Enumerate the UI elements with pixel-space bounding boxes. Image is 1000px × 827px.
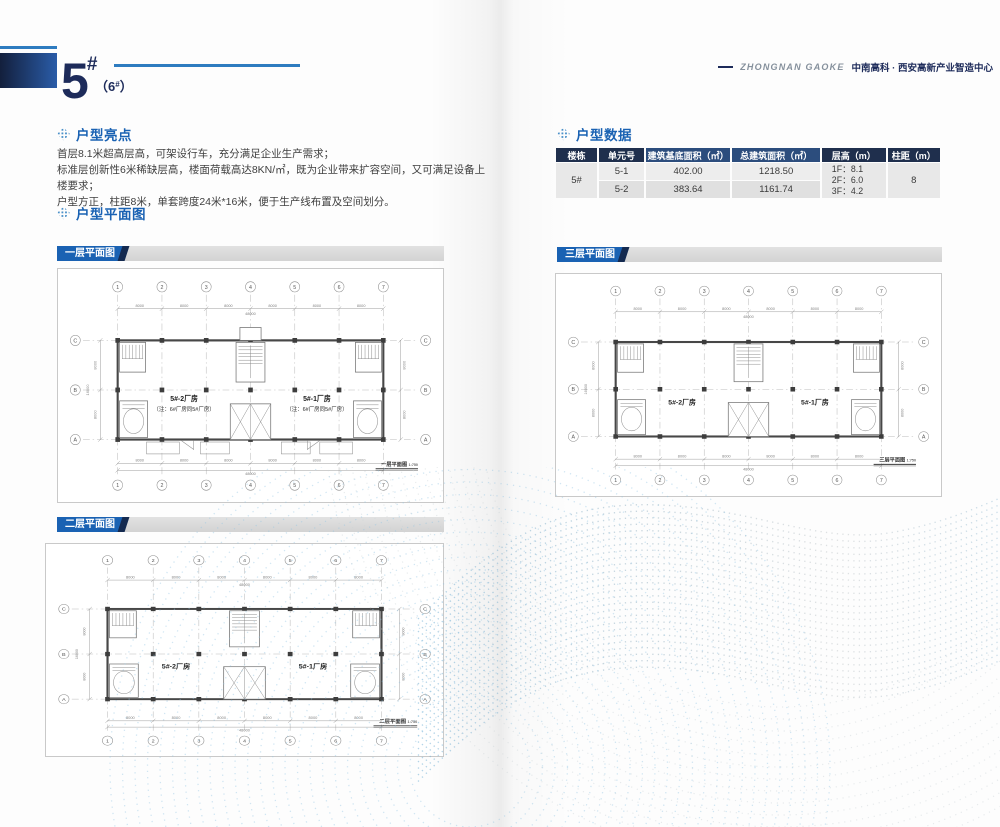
floor-height-1f: 1F：8.1: [832, 164, 876, 175]
svg-text:4: 4: [243, 739, 246, 745]
svg-text:8000: 8000: [83, 673, 87, 681]
svg-text:8000: 8000: [634, 454, 643, 458]
dotted-diamond-icon: [57, 207, 70, 220]
svg-text:8000: 8000: [855, 307, 864, 311]
alt-pre: （6: [95, 79, 115, 94]
svg-text:5: 5: [791, 289, 794, 295]
logo-accent-bar: [0, 53, 57, 88]
building-alt-number: （6#）: [95, 76, 133, 95]
section-title: 户型平面图: [76, 203, 146, 223]
svg-text:8000: 8000: [263, 716, 272, 720]
svg-text:B: B: [572, 387, 576, 393]
svg-text:A: A: [922, 434, 926, 440]
cell-base-area: 402.00: [646, 163, 730, 180]
svg-text:5: 5: [293, 483, 296, 489]
svg-text:B: B: [74, 388, 78, 394]
svg-text:8000: 8000: [354, 716, 363, 720]
svg-text:1: 1: [106, 558, 109, 564]
svg-text:8000: 8000: [83, 628, 87, 636]
svg-text:8000: 8000: [313, 303, 322, 308]
building-number: 5#: [61, 40, 97, 106]
svg-text:4: 4: [243, 558, 246, 564]
svg-text:4: 4: [249, 285, 252, 291]
svg-text:8000: 8000: [180, 303, 189, 308]
floor-plan-second: CCBBAA1122334455667780008000800080008000…: [45, 543, 444, 757]
svg-text:8000: 8000: [811, 454, 820, 458]
col-floor-height: 层高（m）: [822, 148, 886, 162]
svg-text:8000: 8000: [678, 307, 687, 311]
svg-text:1: 1: [116, 285, 119, 291]
svg-text:8000: 8000: [766, 307, 775, 311]
page-fold-shadow: [430, 0, 570, 827]
svg-text:6: 6: [334, 558, 337, 564]
svg-text:6: 6: [338, 285, 341, 291]
svg-text:3: 3: [703, 478, 706, 484]
svg-text:（注：6#厂房同5#厂房）: （注：6#厂房同5#厂房）: [286, 405, 347, 413]
cell-base-area: 383.64: [646, 181, 730, 198]
svg-text:48000: 48000: [245, 471, 256, 476]
svg-text:三层平面图 1:750: 三层平面图 1:750: [879, 456, 916, 464]
col-unit: 单元号: [599, 148, 644, 162]
col-total-area: 总建筑面积（㎡）: [732, 148, 820, 162]
svg-text:8000: 8000: [136, 303, 145, 308]
svg-text:48000: 48000: [743, 315, 754, 319]
svg-text:1: 1: [614, 289, 617, 295]
svg-text:B: B: [423, 652, 427, 658]
svg-text:16000: 16000: [584, 384, 588, 394]
svg-text:B: B: [62, 652, 66, 658]
svg-text:8000: 8000: [634, 307, 643, 311]
svg-text:48000: 48000: [239, 729, 250, 733]
svg-text:7: 7: [880, 478, 883, 484]
floor-plan-third: CCBBAA1122334455667780008000800080008000…: [555, 273, 942, 497]
svg-text:48000: 48000: [743, 468, 754, 472]
svg-text:7: 7: [380, 558, 383, 564]
svg-text:8000: 8000: [402, 360, 407, 370]
svg-text:3: 3: [197, 739, 200, 745]
plan-tag-row-3f: 三层平面图: [557, 247, 942, 262]
svg-text:2: 2: [658, 478, 661, 484]
col-base-area: 建筑基底面积（㎡）: [646, 148, 730, 162]
unit-data-table: 楼栋 单元号 建筑基底面积（㎡） 总建筑面积（㎡） 层高（m） 柱距（m） 5#…: [554, 147, 942, 199]
svg-text:48000: 48000: [239, 583, 250, 587]
svg-text:8000: 8000: [126, 716, 135, 720]
svg-text:1: 1: [116, 483, 119, 489]
plan-tag-label: 二层平面图: [57, 517, 124, 532]
svg-text:7: 7: [382, 483, 385, 489]
brochure-page: 5# （6#） ZHONGNAN GAOKE 中南高科 · 西安高新产业智造中心…: [0, 0, 1000, 827]
svg-text:（注：6#厂房同5#厂房）: （注：6#厂房同5#厂房）: [153, 405, 214, 413]
floor-plan-first: CCBBAA1122334455667780008000800080008000…: [57, 268, 444, 503]
svg-text:8000: 8000: [402, 410, 407, 420]
cell-unit: 5-2: [599, 181, 644, 198]
building-number-sup: #: [87, 54, 98, 75]
svg-text:7: 7: [880, 289, 883, 295]
highlights-text: 首层8.1米超高层高，可架设行车，充分满足企业生产需求； 标准层创新性6米稀缺层…: [57, 146, 487, 210]
svg-text:8000: 8000: [172, 716, 181, 720]
svg-text:3: 3: [205, 285, 208, 291]
svg-text:5#-1厂房: 5#-1厂房: [801, 397, 829, 406]
svg-text:A: A: [62, 697, 66, 703]
svg-text:2: 2: [658, 289, 661, 295]
cell-unit: 5-1: [599, 163, 644, 180]
cell-total-area: 1161.74: [732, 181, 820, 198]
floor-height-3f: 3F：4.2: [832, 186, 876, 197]
col-column-spacing: 柱距（m）: [888, 148, 940, 162]
plan-tag-label: 一层平面图: [57, 246, 124, 261]
svg-text:7: 7: [382, 285, 385, 291]
svg-text:4: 4: [249, 483, 252, 489]
svg-text:6: 6: [338, 483, 341, 489]
svg-text:8000: 8000: [722, 454, 731, 458]
table-row: 5# 5-1 402.00 1218.50 1F：8.1 2F：6.0 3F：4…: [556, 163, 940, 180]
svg-text:16000: 16000: [75, 649, 79, 659]
svg-text:8000: 8000: [263, 576, 272, 580]
svg-text:8000: 8000: [217, 716, 226, 720]
svg-text:5#-2厂房: 5#-2厂房: [162, 662, 191, 671]
svg-text:二层平面图 1:750: 二层平面图 1:750: [379, 718, 417, 725]
svg-text:C: C: [62, 607, 66, 613]
plan-tag-row-1f: 一层平面图: [57, 246, 444, 261]
svg-text:5: 5: [289, 558, 292, 564]
svg-text:1: 1: [614, 478, 617, 484]
floor-height-2f: 2F：6.0: [832, 175, 876, 186]
svg-text:8000: 8000: [357, 457, 366, 462]
svg-text:8000: 8000: [136, 457, 145, 462]
svg-text:4: 4: [747, 478, 750, 484]
svg-text:3: 3: [703, 289, 706, 295]
section-title: 户型数据: [576, 124, 632, 144]
svg-text:3: 3: [197, 558, 200, 564]
svg-text:8000: 8000: [217, 576, 226, 580]
svg-text:8000: 8000: [900, 361, 904, 369]
svg-text:8000: 8000: [309, 716, 318, 720]
svg-text:8000: 8000: [900, 409, 904, 417]
col-building: 楼栋: [556, 148, 597, 162]
svg-text:2: 2: [152, 558, 155, 564]
building-number-text: 5: [61, 53, 87, 109]
highlight-line: 首层8.1米超高层高，可架设行车，充分满足企业生产需求；: [57, 146, 487, 162]
svg-text:8000: 8000: [93, 410, 98, 420]
svg-text:6: 6: [334, 739, 337, 745]
svg-text:C: C: [423, 607, 427, 613]
svg-text:8000: 8000: [224, 303, 233, 308]
svg-text:C: C: [73, 338, 77, 344]
svg-text:C: C: [922, 340, 926, 346]
dotted-diamond-icon: [557, 128, 570, 141]
svg-text:8000: 8000: [811, 307, 820, 311]
svg-text:1: 1: [106, 739, 109, 745]
brand-header: ZHONGNAN GAOKE 中南高科 · 西安高新产业智造中心: [718, 60, 1000, 74]
svg-text:8000: 8000: [401, 628, 405, 636]
svg-text:6: 6: [836, 289, 839, 295]
svg-text:8000: 8000: [268, 303, 277, 308]
svg-text:8000: 8000: [313, 457, 322, 462]
svg-text:8000: 8000: [93, 360, 98, 370]
svg-text:C: C: [424, 338, 428, 344]
cell-column-spacing: 8: [888, 163, 940, 198]
svg-text:5: 5: [791, 478, 794, 484]
cell-floor-heights: 1F：8.1 2F：6.0 3F：4.2: [822, 163, 886, 198]
svg-text:8000: 8000: [766, 454, 775, 458]
svg-text:8000: 8000: [591, 361, 595, 369]
brand-cn: 中南高科 · 西安高新产业智造中心: [852, 60, 993, 74]
svg-text:8000: 8000: [224, 457, 233, 462]
svg-text:2: 2: [160, 483, 163, 489]
svg-text:5#-1厂房: 5#-1厂房: [299, 662, 328, 671]
svg-text:8000: 8000: [180, 457, 189, 462]
plan-tag-bar: [623, 247, 942, 262]
section-highlights-header: 户型亮点: [57, 124, 132, 144]
svg-text:8000: 8000: [591, 409, 595, 417]
svg-text:8000: 8000: [172, 576, 181, 580]
svg-text:5#-1厂房: 5#-1厂房: [303, 394, 331, 403]
svg-text:8000: 8000: [855, 454, 864, 458]
svg-text:B: B: [922, 387, 926, 393]
svg-text:5: 5: [289, 739, 292, 745]
svg-text:8000: 8000: [678, 454, 687, 458]
svg-text:2: 2: [152, 739, 155, 745]
svg-text:8000: 8000: [268, 457, 277, 462]
svg-text:一层平面图 1:750: 一层平面图 1:750: [381, 460, 418, 468]
svg-text:5: 5: [293, 285, 296, 291]
cell-building: 5#: [556, 163, 597, 198]
svg-text:B: B: [424, 388, 428, 394]
unit-data-table-wrap: 楼栋 单元号 建筑基底面积（㎡） 总建筑面积（㎡） 层高（m） 柱距（m） 5#…: [554, 147, 942, 199]
svg-text:2: 2: [160, 285, 163, 291]
plan-tag-row-2f: 二层平面图: [57, 517, 444, 532]
svg-text:48000: 48000: [245, 311, 256, 316]
svg-text:8000: 8000: [309, 576, 318, 580]
svg-text:A: A: [572, 434, 576, 440]
svg-text:8000: 8000: [126, 576, 135, 580]
plan-tag-label: 三层平面图: [557, 247, 624, 262]
title-rule-line: [114, 64, 300, 67]
dotted-diamond-icon: [57, 128, 70, 141]
svg-text:5#-2厂房: 5#-2厂房: [668, 397, 696, 406]
svg-text:5#-2厂房: 5#-2厂房: [170, 394, 198, 403]
section-data-header: 户型数据: [557, 124, 632, 144]
svg-text:C: C: [571, 340, 575, 346]
svg-text:8000: 8000: [357, 303, 366, 308]
brand-en: ZHONGNAN GAOKE: [740, 62, 844, 72]
logo-accent-line: [0, 46, 57, 49]
cell-total-area: 1218.50: [732, 163, 820, 180]
plan-tag-bar: [123, 517, 444, 532]
svg-text:7: 7: [380, 739, 383, 745]
svg-text:8000: 8000: [722, 307, 731, 311]
svg-text:A: A: [423, 697, 427, 703]
plan-tag-bar: [123, 246, 444, 261]
svg-text:4: 4: [747, 289, 750, 295]
svg-text:8000: 8000: [401, 673, 405, 681]
svg-text:A: A: [424, 437, 428, 443]
section-plans-header: 户型平面图: [57, 203, 146, 223]
svg-text:16000: 16000: [85, 384, 90, 396]
section-title: 户型亮点: [76, 124, 132, 144]
alt-post: ）: [120, 79, 133, 94]
brand-dash: [718, 66, 733, 68]
highlight-line: 标准层创新性6米稀缺层高，楼面荷载高达8KN/㎡，既为企业带来扩容空间，又可满足…: [57, 162, 487, 194]
svg-text:3: 3: [205, 483, 208, 489]
svg-text:A: A: [74, 437, 78, 443]
svg-text:8000: 8000: [354, 576, 363, 580]
svg-text:6: 6: [836, 478, 839, 484]
